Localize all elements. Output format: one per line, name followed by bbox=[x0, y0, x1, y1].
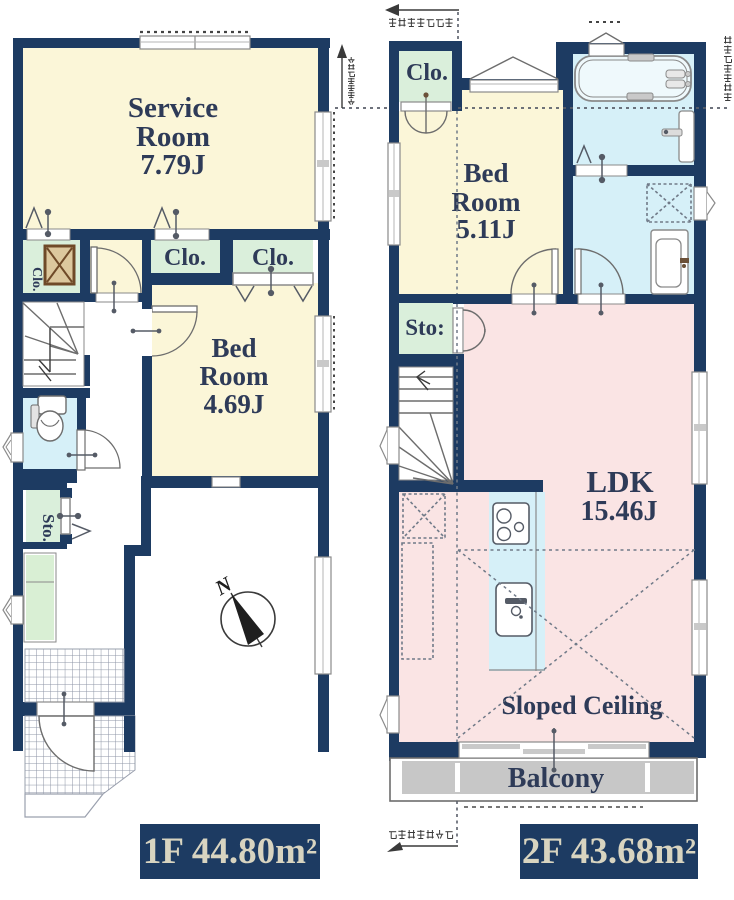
svg-text:5.11J: 5.11J bbox=[456, 214, 515, 244]
svg-text:2F 43.68m²: 2F 43.68m² bbox=[522, 831, 696, 872]
svg-text:7.79J: 7.79J bbox=[140, 149, 205, 181]
svg-text:LDK: LDK bbox=[586, 464, 653, 499]
svg-text:Service: Service bbox=[128, 92, 218, 124]
svg-text:Bed: Bed bbox=[211, 333, 256, 363]
svg-text:4.69J: 4.69J bbox=[204, 389, 265, 419]
svg-text:Sto.: Sto. bbox=[39, 514, 58, 542]
svg-text:Clo.: Clo. bbox=[29, 267, 44, 292]
svg-text:Balcony: Balcony bbox=[508, 763, 604, 794]
svg-text:Clo.: Clo. bbox=[406, 60, 448, 86]
svg-text:Sloped Ceiling: Sloped Ceiling bbox=[501, 691, 662, 720]
svg-text:1F 44.80m²: 1F 44.80m² bbox=[143, 831, 317, 872]
svg-text:Clo.: Clo. bbox=[164, 245, 206, 271]
svg-text:Sto:: Sto: bbox=[405, 315, 445, 340]
svg-text:Room: Room bbox=[200, 361, 269, 391]
svg-text:15.46J: 15.46J bbox=[581, 496, 658, 527]
svg-text:Bed: Bed bbox=[463, 158, 508, 188]
svg-text:Room: Room bbox=[452, 187, 521, 217]
